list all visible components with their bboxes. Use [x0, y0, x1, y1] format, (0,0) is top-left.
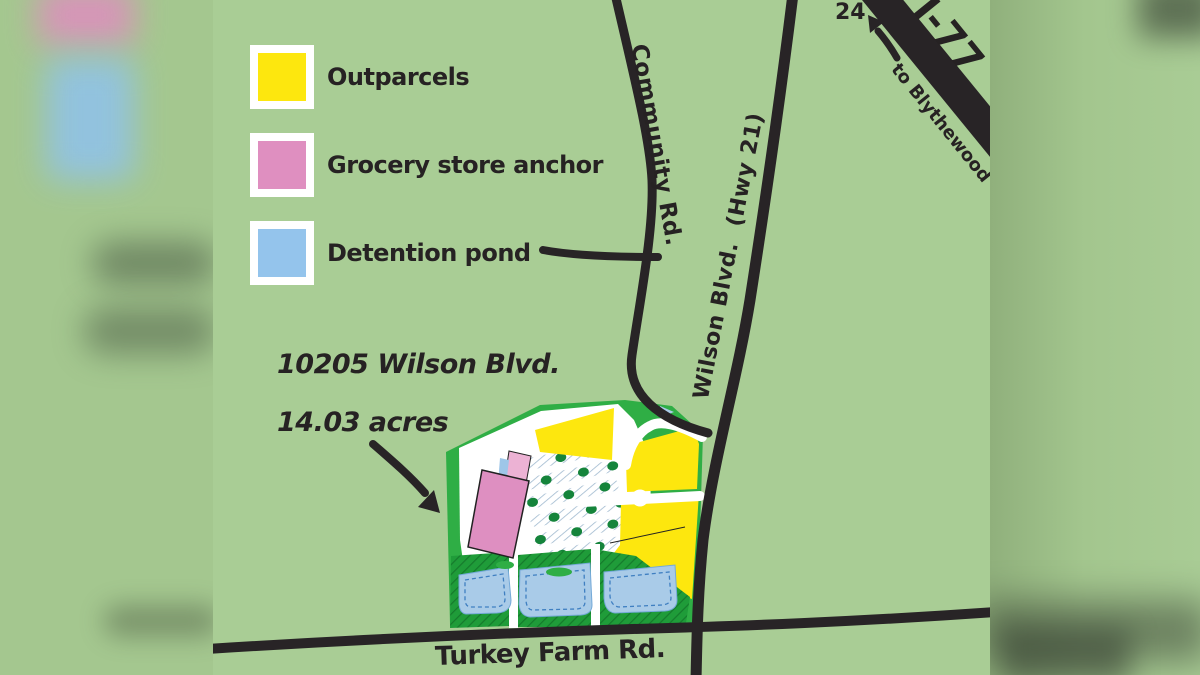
blurred-left-margin [0, 0, 213, 675]
blurred-road-smudge [1000, 630, 1130, 675]
blurred-pink-swatch [38, 0, 134, 44]
site-address: 10205 Wilson Blvd. [277, 349, 560, 380]
exit-number: 24 [835, 0, 866, 25]
grocery-anchor-label: Grocery store anchor [327, 151, 603, 179]
blurred-text-smudge [84, 308, 213, 354]
drive-turnaround [632, 490, 649, 507]
site-area: 14.03 acres [277, 407, 448, 438]
outparcels-swatch [250, 45, 314, 109]
green-island [496, 561, 514, 569]
blurred-right-margin [990, 0, 1200, 675]
blurred-text-smudge [92, 242, 213, 284]
blurred-road-smudge [104, 606, 213, 636]
screenshot: Outparcels Grocery store anchor Detentio… [0, 0, 1200, 675]
pond-drive-2 [591, 544, 600, 628]
road-community-stub [543, 250, 658, 257]
blurred-highway-smudge [1138, 0, 1200, 38]
detention-pond-label: Detention pond [327, 239, 531, 267]
map-area: Outparcels Grocery store anchor Detentio… [213, 0, 990, 675]
site-plan [446, 400, 703, 630]
blurred-blue-swatch [46, 58, 134, 180]
legend-item-detention-pond: Detention pond [250, 221, 531, 285]
legend-item-grocery-anchor: Grocery store anchor [250, 133, 603, 197]
legend-item-outparcels: Outparcels [250, 45, 469, 109]
annotation-arrow [373, 444, 440, 513]
outparcels-label: Outparcels [327, 63, 469, 91]
grocery-anchor-swatch [250, 133, 314, 197]
detention-pond-swatch [250, 221, 314, 285]
green-island [546, 568, 572, 577]
